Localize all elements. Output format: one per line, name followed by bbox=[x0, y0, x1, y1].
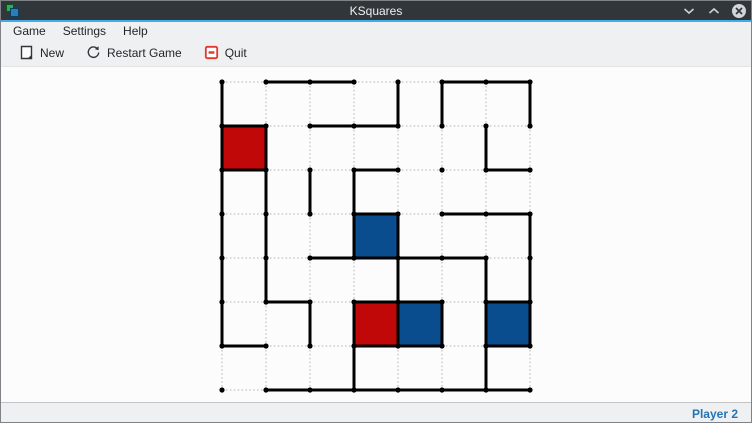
board-dot bbox=[263, 79, 268, 84]
board-dot bbox=[263, 299, 268, 304]
board-dot bbox=[307, 255, 312, 260]
board-dot bbox=[439, 387, 444, 392]
board-dot bbox=[439, 299, 444, 304]
board-dot bbox=[527, 211, 532, 216]
board-dot bbox=[527, 123, 532, 128]
menu-game[interactable]: Game bbox=[13, 24, 46, 38]
board-dot bbox=[395, 79, 400, 84]
board-dot bbox=[395, 387, 400, 392]
board-dot bbox=[307, 343, 312, 348]
board-dot bbox=[439, 167, 444, 172]
board-dot bbox=[263, 167, 268, 172]
close-button[interactable] bbox=[731, 3, 747, 19]
board-dot bbox=[351, 167, 356, 172]
board-dot bbox=[439, 255, 444, 260]
board-dot bbox=[483, 123, 488, 128]
window-title: KSquares bbox=[1, 4, 751, 18]
captured-square-red bbox=[222, 126, 266, 170]
quit-button[interactable]: Quit bbox=[198, 42, 253, 63]
board-dot bbox=[439, 123, 444, 128]
board-dot bbox=[483, 211, 488, 216]
titlebar[interactable]: KSquares bbox=[1, 1, 751, 20]
board-dot bbox=[439, 211, 444, 216]
board-dot bbox=[527, 343, 532, 348]
board-dot bbox=[263, 387, 268, 392]
board-dot bbox=[395, 123, 400, 128]
board-dot bbox=[351, 123, 356, 128]
board-dot bbox=[351, 255, 356, 260]
board-dot bbox=[395, 255, 400, 260]
board-dot bbox=[263, 211, 268, 216]
board-dot bbox=[351, 343, 356, 348]
new-button[interactable]: New bbox=[13, 42, 70, 63]
board-dot bbox=[219, 387, 224, 392]
captured-square-red bbox=[354, 302, 398, 346]
menubar: Game Settings Help bbox=[1, 22, 751, 39]
board-dot bbox=[351, 79, 356, 84]
captured-square-blue bbox=[398, 302, 442, 346]
board-dot bbox=[395, 211, 400, 216]
board-dot bbox=[307, 387, 312, 392]
board-dot bbox=[483, 167, 488, 172]
board-dot bbox=[263, 343, 268, 348]
board-dot bbox=[219, 211, 224, 216]
quit-button-label: Quit bbox=[225, 46, 247, 60]
board-dot bbox=[219, 123, 224, 128]
board-dot bbox=[527, 79, 532, 84]
game-board[interactable] bbox=[1, 67, 752, 402]
board-dot bbox=[527, 167, 532, 172]
board-dot bbox=[483, 387, 488, 392]
board-dot bbox=[439, 343, 444, 348]
board-dot bbox=[307, 299, 312, 304]
ksquares-window: KSquares Game Settings Help bbox=[0, 0, 752, 423]
toolbar: New Restart Game Quit bbox=[1, 39, 751, 67]
board-dot bbox=[219, 255, 224, 260]
chevron-up-icon bbox=[708, 7, 720, 15]
maximize-button[interactable] bbox=[706, 3, 722, 19]
board-dot bbox=[351, 211, 356, 216]
board-dot bbox=[263, 123, 268, 128]
restart-icon bbox=[86, 45, 101, 60]
current-player-label: Player 2 bbox=[692, 407, 738, 421]
board-dot bbox=[483, 299, 488, 304]
menu-help[interactable]: Help bbox=[123, 24, 148, 38]
new-button-label: New bbox=[40, 46, 64, 60]
board-dot bbox=[439, 79, 444, 84]
board-dot bbox=[527, 299, 532, 304]
statusbar: Player 2 bbox=[1, 402, 751, 423]
board-dot bbox=[395, 343, 400, 348]
quit-icon bbox=[204, 45, 219, 60]
board-dot bbox=[219, 299, 224, 304]
board-dot bbox=[219, 79, 224, 84]
captured-square-blue bbox=[354, 214, 398, 258]
board-dot bbox=[307, 211, 312, 216]
new-document-icon bbox=[19, 45, 34, 60]
board-dot bbox=[395, 167, 400, 172]
board-dot bbox=[351, 299, 356, 304]
board-dot bbox=[527, 387, 532, 392]
circle-x-icon bbox=[731, 3, 747, 19]
board-dot bbox=[307, 123, 312, 128]
board-dot bbox=[307, 79, 312, 84]
board-dot bbox=[307, 167, 312, 172]
board-dot bbox=[219, 167, 224, 172]
menu-settings[interactable]: Settings bbox=[63, 24, 106, 38]
board-dot bbox=[219, 343, 224, 348]
restart-game-button-label: Restart Game bbox=[107, 46, 182, 60]
board-dot bbox=[483, 79, 488, 84]
board-dot bbox=[351, 387, 356, 392]
restart-game-button[interactable]: Restart Game bbox=[80, 42, 188, 63]
minimize-button[interactable] bbox=[681, 3, 697, 19]
board-dot bbox=[483, 343, 488, 348]
board-dot bbox=[483, 255, 488, 260]
board-dot bbox=[263, 255, 268, 260]
board-dot bbox=[527, 255, 532, 260]
captured-square-blue bbox=[486, 302, 530, 346]
board-dot bbox=[395, 299, 400, 304]
chevron-down-icon bbox=[683, 7, 695, 15]
